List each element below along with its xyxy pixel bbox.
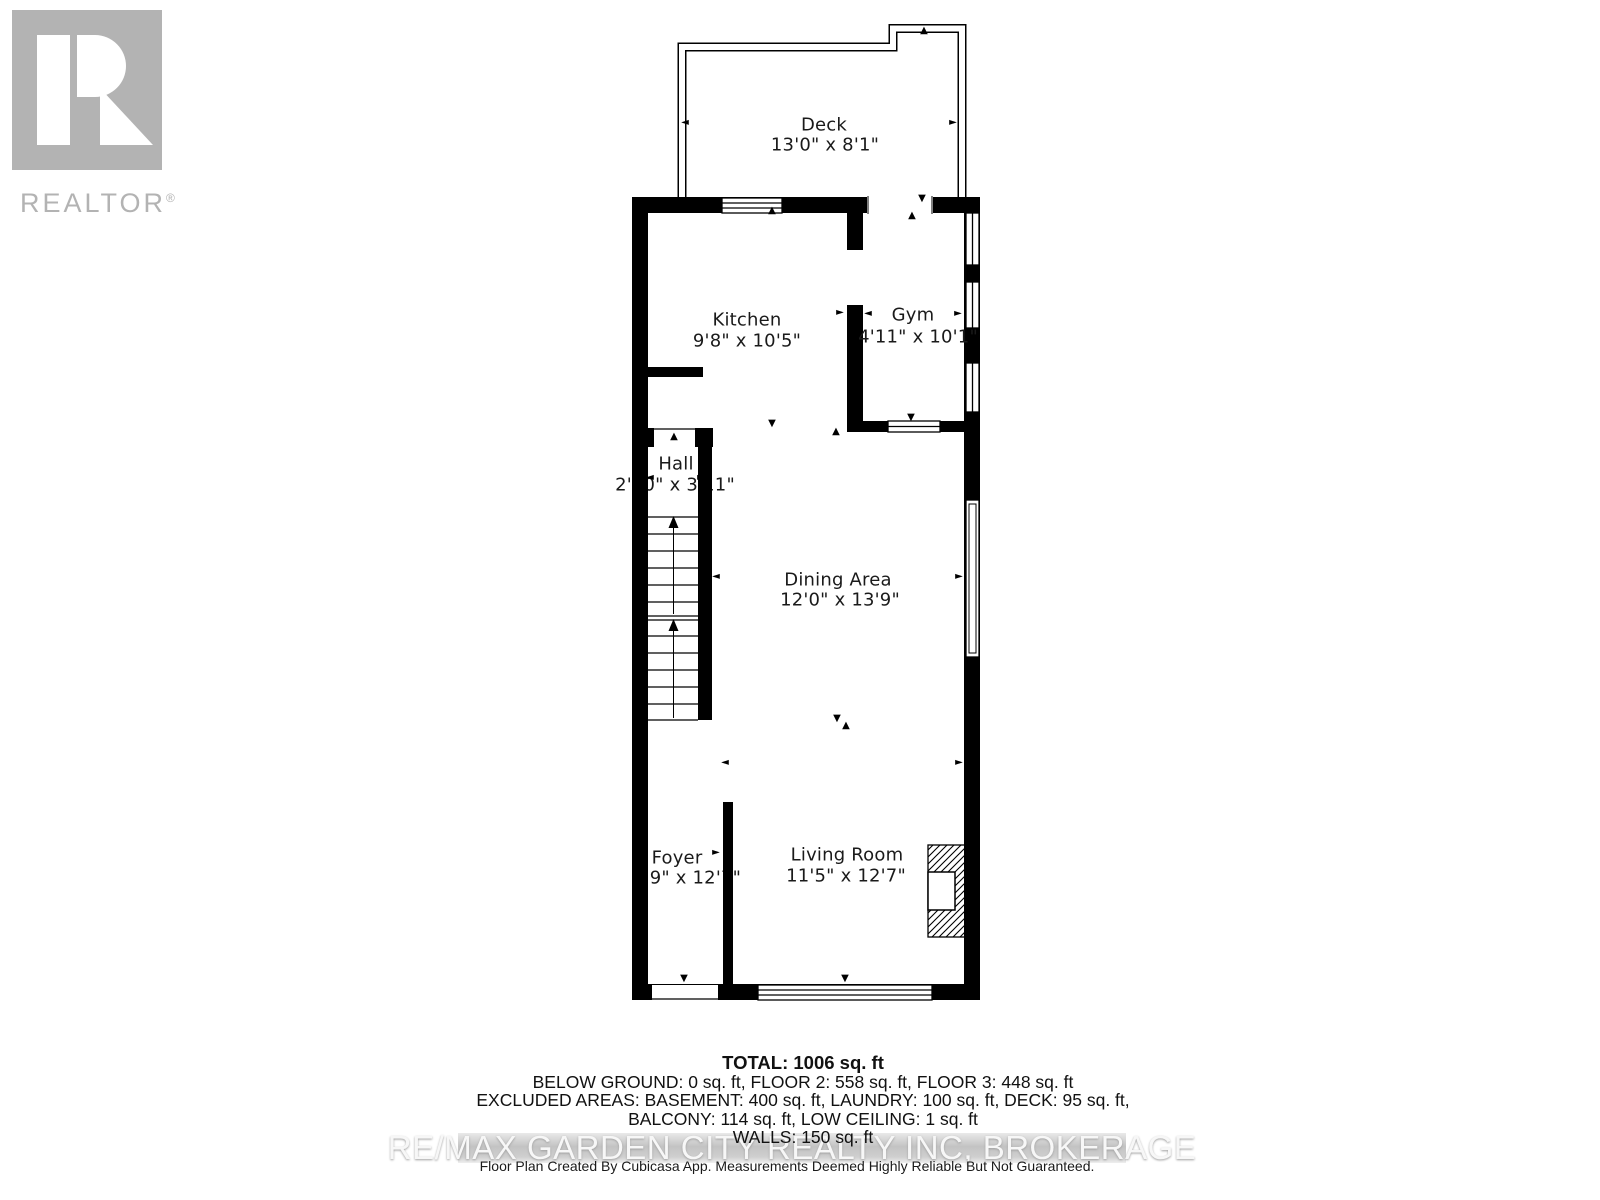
room-label-foyer: Foyer [652, 848, 703, 869]
measure-arrow-down-icon: ▼ [918, 194, 926, 204]
measure-arrow-left-icon: ◄ [721, 758, 729, 768]
room-dims-deck: 13'0" x 8'1" [771, 135, 879, 156]
registered-mark: ® [166, 191, 175, 205]
disclaimer-footer: Floor Plan Created By Cubicasa App. Meas… [480, 1158, 1095, 1174]
room-dims-kitchen: 9'8" x 10'5" [693, 331, 801, 352]
measure-arrow-up-icon: ▲ [768, 206, 776, 216]
measure-arrow-down-icon: ▼ [680, 974, 688, 984]
room-label-dining: Dining Area [784, 570, 891, 591]
measure-arrow-left-icon: ◄ [712, 572, 720, 582]
floor-plan-page: 2'10" x 3'11" 3'9" x 12'7" [0, 0, 1600, 1200]
room-dims-living: 11'5" x 12'7" [786, 866, 906, 887]
measure-arrow-down-icon: ▼ [907, 413, 915, 423]
realtor-logo: REALTOR® [12, 10, 168, 229]
room-label-kitchen: Kitchen [712, 310, 781, 331]
measure-arrow-left-icon: ◄ [640, 848, 648, 858]
floors-area: BELOW GROUND: 0 sq. ft, FLOOR 2: 558 sq.… [476, 1073, 1129, 1092]
measure-arrow-up-icon: ▲ [908, 211, 916, 221]
measure-arrow-left-icon: ◄ [681, 118, 689, 128]
measure-arrow-right-icon: ► [949, 118, 957, 128]
room-label-gym: Gym [892, 305, 935, 326]
area-summary: TOTAL: 1006 sq. ft BELOW GROUND: 0 sq. f… [476, 1054, 1129, 1147]
total-area: TOTAL: 1006 sq. ft [476, 1054, 1129, 1073]
measure-arrow-right-icon: ► [954, 309, 962, 319]
measure-arrow-down-icon: ▼ [841, 974, 849, 984]
measure-arrow-right-icon: ► [955, 758, 963, 768]
excluded-areas-line1: EXCLUDED AREAS: BASEMENT: 400 sq. ft, LA… [476, 1091, 1129, 1110]
excluded-areas-line2: BALCONY: 114 sq. ft, LOW CEILING: 1 sq. … [476, 1110, 1129, 1129]
measure-arrow-down-icon: ▼ [833, 714, 841, 724]
room-label-hall: Hall [658, 454, 693, 475]
room-dims-dining: 12'0" x 13'9" [780, 590, 900, 611]
measure-arrow-up-icon: ▲ [832, 427, 840, 437]
measure-arrow-right-icon: ► [712, 848, 720, 858]
room-dims-gym: 4'11" x 10'1" [858, 327, 978, 348]
measure-arrow-right-icon: ► [697, 473, 705, 483]
measure-arrow-up-icon: ▲ [842, 721, 850, 731]
measure-arrow-down-icon: ▼ [768, 419, 776, 429]
room-label-deck: Deck [801, 115, 847, 136]
measure-arrow-up-icon: ▲ [920, 26, 928, 36]
measure-arrow-left-icon: ◄ [639, 308, 647, 318]
measure-arrow-left-icon: ◄ [646, 473, 654, 483]
room-label-living: Living Room [791, 845, 904, 866]
measure-arrow-right-icon: ► [836, 308, 844, 318]
walls-area: WALLS: 150 sq. ft [476, 1128, 1129, 1147]
measure-arrow-right-icon: ► [955, 572, 963, 582]
measure-arrow-up-icon: ▲ [670, 432, 678, 442]
realtor-logo-label: REALTOR® [20, 188, 190, 219]
measure-arrow-left-icon: ◄ [864, 309, 872, 319]
